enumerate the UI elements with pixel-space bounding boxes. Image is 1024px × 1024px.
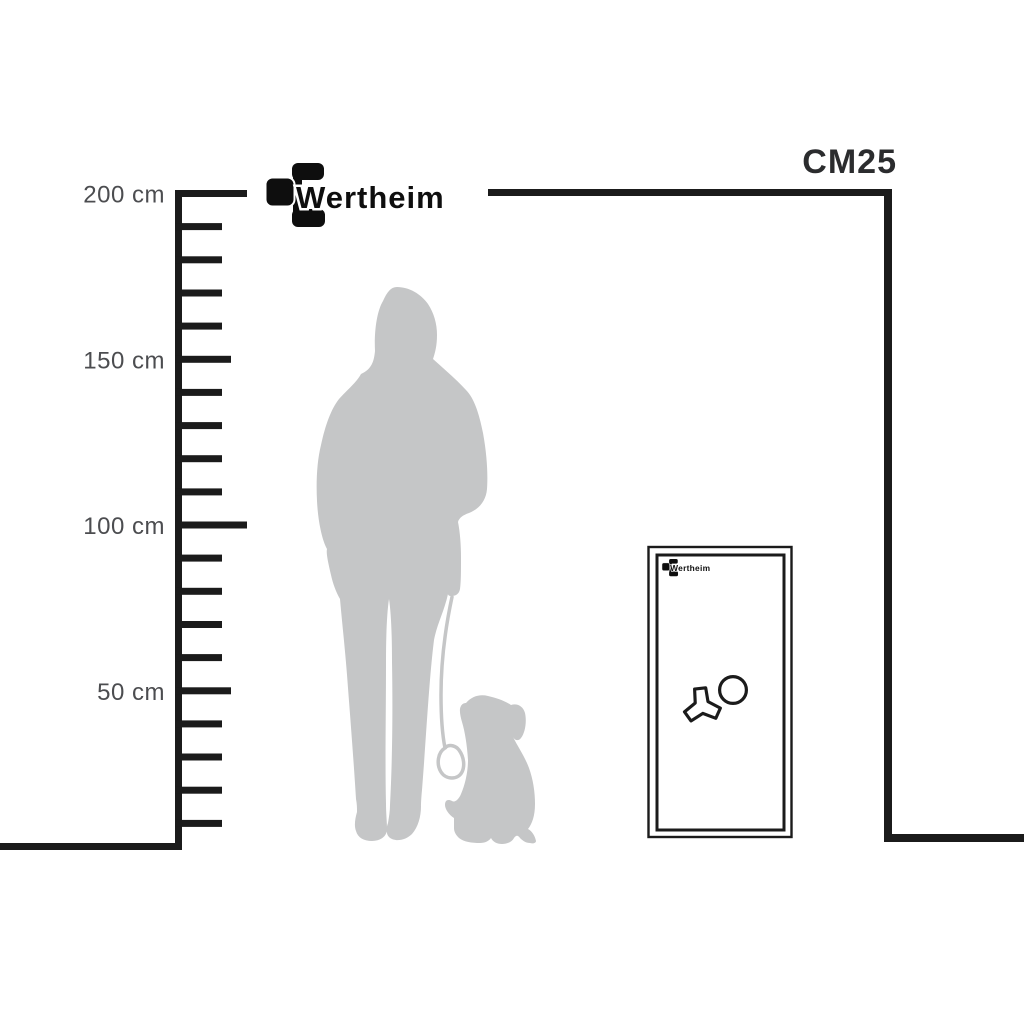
ruler-tick-140cm — [175, 389, 222, 396]
model-label: CM25 — [802, 143, 897, 181]
ruler-tick-30cm — [175, 754, 222, 761]
ruler-label-50cm: 50 cm — [97, 679, 165, 706]
ruler-tick-100cm — [175, 522, 247, 529]
ruler-label-200cm: 200 cm — [83, 182, 165, 209]
leash-line — [438, 597, 463, 778]
dog-silhouette — [445, 695, 536, 844]
ruler-tick-160cm — [175, 323, 222, 330]
ruler-tick-120cm — [175, 455, 222, 462]
dial-knob-icon — [720, 677, 747, 704]
ruler-tick-70cm — [175, 621, 222, 628]
right-line — [884, 189, 892, 841]
safe-front — [649, 547, 792, 837]
ruler-tick-90cm — [175, 555, 222, 562]
diagram-canvas: Wertheim 200 cm150 cm100 cm50 cm CM25 — [0, 0, 1024, 1024]
ruler-tick-200cm — [175, 190, 247, 197]
ruler-tick-170cm — [175, 290, 222, 297]
size-comparison-diagram: Wertheim 200 cm150 cm100 cm50 cm CM25 — [0, 0, 1024, 1024]
ruler-tick-10cm — [175, 820, 222, 827]
ruler-tick-60cm — [175, 654, 222, 661]
ruler-tick-190cm — [175, 223, 222, 230]
ruler-tick-80cm — [175, 588, 222, 595]
ruler-tick-180cm — [175, 256, 222, 263]
ruler-tick-130cm — [175, 422, 222, 429]
ruler-tick-50cm — [175, 687, 231, 694]
ruler-label-100cm: 100 cm — [83, 513, 165, 540]
ruler-tick-150cm — [175, 356, 231, 363]
ruler-tick-110cm — [175, 488, 222, 495]
ruler-tick-40cm — [175, 720, 222, 727]
floor-line-left — [0, 843, 182, 850]
top-line — [488, 189, 892, 196]
floor-line-right — [884, 834, 1024, 842]
ruler-label-150cm: 150 cm — [83, 347, 165, 374]
brand-logo-top — [266, 163, 445, 227]
ruler-line — [175, 190, 182, 850]
height-ruler: 200 cm150 cm100 cm50 cm — [0, 182, 247, 851]
ruler-tick-20cm — [175, 787, 222, 794]
ruler-ticks: 200 cm150 cm100 cm50 cm — [83, 182, 247, 827]
